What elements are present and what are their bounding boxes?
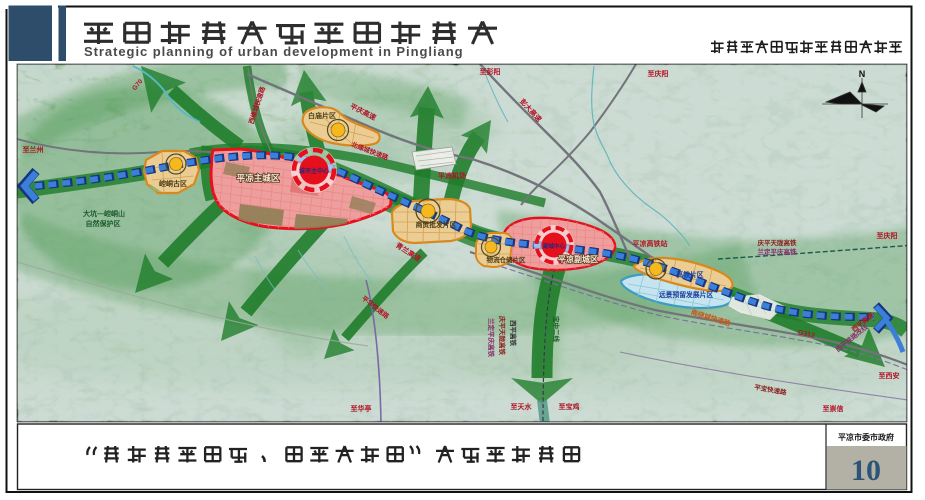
svg-text:平凉主城区: 平凉主城区 [237, 172, 280, 183]
svg-text:至天水: 至天水 [511, 402, 533, 411]
svg-text:至西安: 至西安 [879, 371, 900, 380]
svg-text:至庆阳: 至庆阳 [877, 231, 898, 240]
svg-text:商贸批发片区: 商贸批发片区 [416, 220, 457, 229]
svg-text:平凉市委市政府: 平凉市委市政府 [838, 432, 894, 442]
svg-text:西平高铁: 西平高铁 [509, 320, 518, 347]
svg-text:高铁片区: 高铁片区 [676, 270, 703, 279]
svg-text:10: 10 [851, 454, 881, 487]
svg-text:N: N [859, 69, 866, 79]
svg-text:兰定平庆高铁: 兰定平庆高铁 [758, 247, 798, 256]
svg-text:崆峒古区: 崆峒古区 [159, 179, 187, 188]
svg-text:兰定平庆高铁: 兰定平庆高铁 [487, 318, 496, 358]
svg-text:至华亭: 至华亭 [351, 404, 372, 413]
svg-text:至崇信: 至崇信 [823, 404, 844, 413]
svg-text:至庆阳: 至庆阳 [648, 69, 669, 78]
svg-text:至宝鸡: 至宝鸡 [559, 402, 580, 411]
svg-text:庆平天陇高铁: 庆平天陇高铁 [498, 315, 507, 356]
svg-text:庆平天陇高铁: 庆平天陇高铁 [757, 238, 798, 247]
svg-text:平凉高铁站: 平凉高铁站 [633, 239, 668, 248]
svg-text:至彭阳: 至彭阳 [480, 67, 501, 76]
svg-text:远景预留发展片区: 远景预留发展片区 [659, 290, 714, 299]
svg-text:Strategic planning of urban de: Strategic planning of urban development … [84, 44, 463, 59]
svg-text:宝中二线: 宝中二线 [552, 316, 561, 343]
svg-text:大坑—崆峒山: 大坑—崆峒山 [83, 209, 125, 218]
svg-text:白庙片区: 白庙片区 [308, 111, 336, 120]
svg-text:平凉副城区: 平凉副城区 [558, 254, 598, 264]
svg-text:自然保护区: 自然保护区 [86, 219, 121, 228]
svg-text:平凉机场: 平凉机场 [438, 171, 466, 180]
svg-text:城市主中心: 城市主中心 [299, 167, 329, 175]
svg-text:副城中心: 副城中心 [543, 242, 566, 250]
svg-text:至兰州: 至兰州 [23, 145, 44, 154]
svg-text:物流仓储片区: 物流仓储片区 [487, 255, 527, 264]
